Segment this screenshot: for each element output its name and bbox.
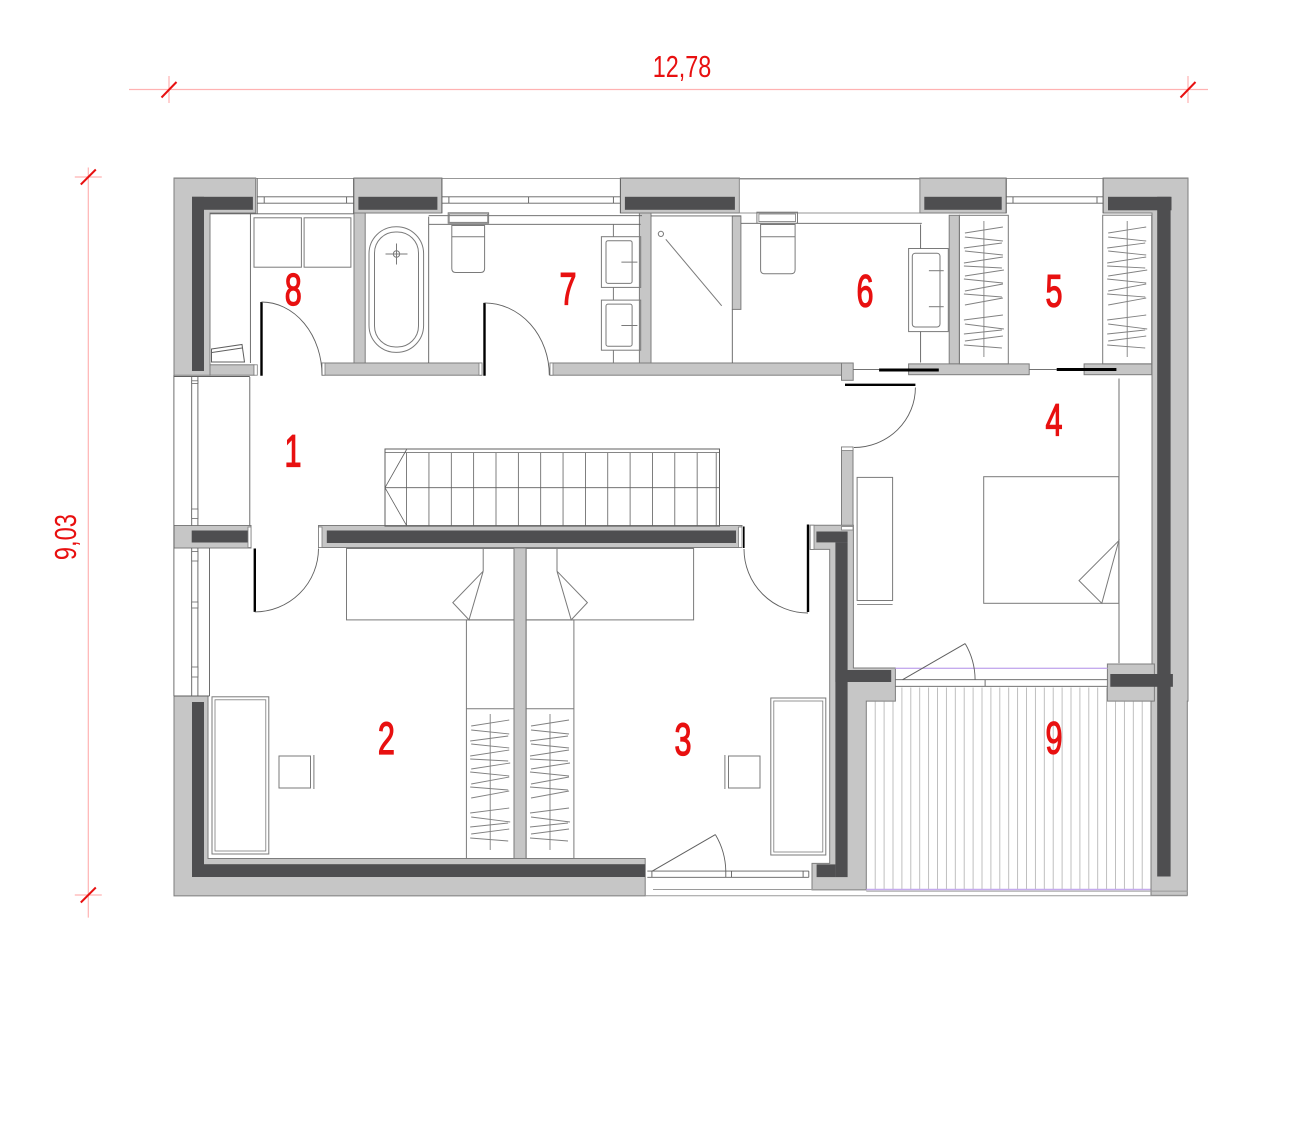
svg-text:6: 6	[857, 266, 874, 317]
svg-text:3: 3	[675, 714, 692, 765]
svg-text:1: 1	[285, 426, 302, 477]
svg-text:5: 5	[1046, 266, 1063, 317]
svg-text:9,03: 9,03	[48, 514, 83, 560]
svg-text:9: 9	[1046, 713, 1063, 764]
svg-text:7: 7	[560, 264, 577, 315]
svg-text:12,78: 12,78	[653, 49, 712, 84]
svg-text:2: 2	[378, 713, 395, 764]
svg-text:8: 8	[285, 264, 302, 315]
svg-text:4: 4	[1046, 395, 1063, 446]
